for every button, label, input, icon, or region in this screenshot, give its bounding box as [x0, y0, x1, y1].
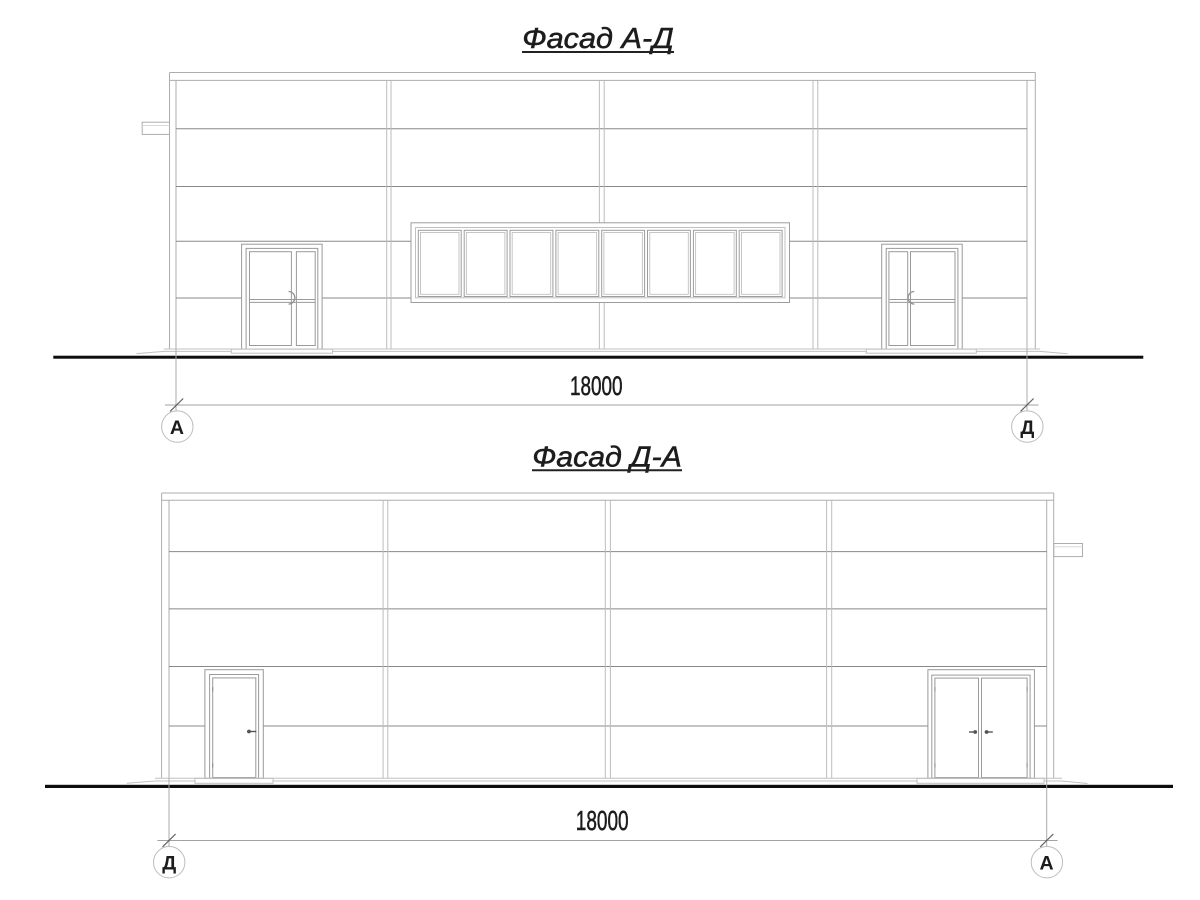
svg-text:Д: Д [1020, 417, 1034, 439]
svg-text:Д: Д [162, 852, 176, 874]
svg-text:18000: 18000 [570, 371, 623, 401]
svg-text:18000: 18000 [576, 805, 629, 836]
svg-text:А: А [1040, 852, 1054, 874]
svg-text:Фасад А-Д: Фасад А-Д [522, 23, 674, 55]
svg-text:Фасад Д-А: Фасад Д-А [532, 441, 682, 473]
svg-text:А: А [170, 417, 184, 439]
